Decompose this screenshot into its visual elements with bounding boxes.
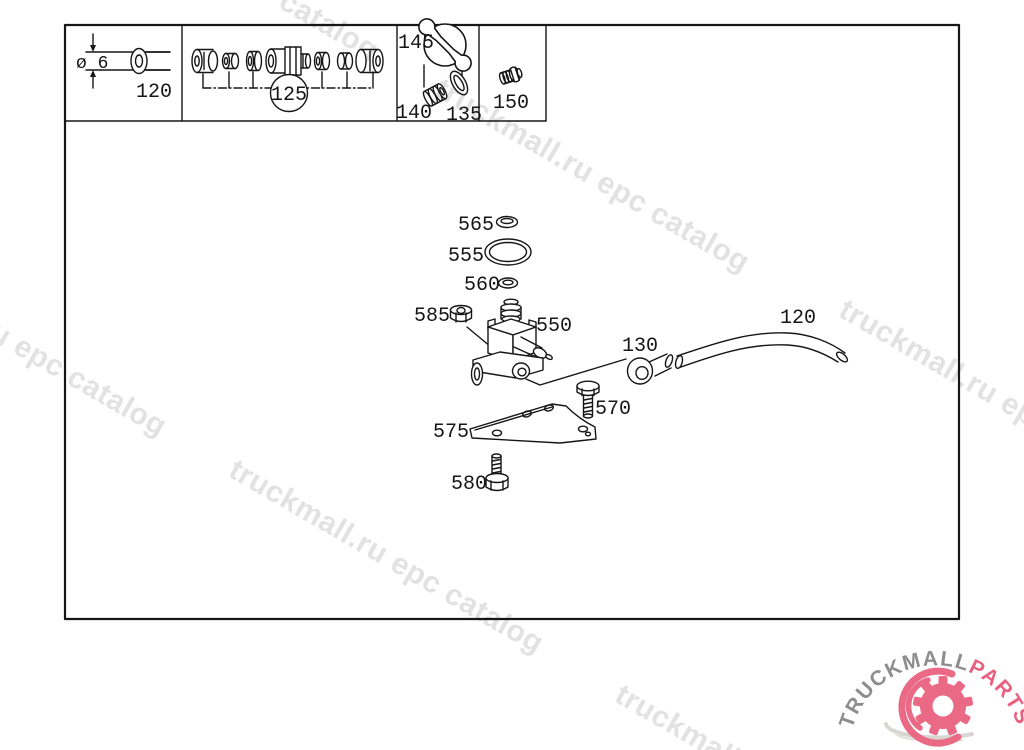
seal-135-drawing (447, 68, 471, 97)
seal-565-drawing: 565 (458, 214, 518, 237)
part-label-140: 140 (396, 102, 432, 125)
bracket-575-drawing: 575 (433, 404, 596, 444)
part-label-120-inset: 120 (136, 81, 172, 104)
part-label-555: 555 (448, 245, 484, 268)
truckmall-logo: TRUCKMALLPARTS (835, 647, 1024, 743)
valve-550-drawing: 550 (472, 299, 573, 385)
part-label-575: 575 (433, 421, 469, 444)
part-label-145: 145 (398, 32, 434, 55)
inset-tools: 145 140 135 (396, 16, 482, 127)
oring-555-drawing: 555 (448, 239, 531, 268)
part-label-120: 120 (780, 307, 816, 330)
inset-tube-120: ø 6 120 (76, 34, 172, 104)
banjo-130-drawing: 130 (622, 335, 674, 384)
parts-diagram-page: truckmall.ru epc catalog truckmall.ru ep… (0, 0, 1024, 750)
hose-120-drawing: 120 (674, 307, 849, 369)
inset-plug-150: 150 (493, 65, 529, 115)
part-label-580: 580 (451, 473, 487, 496)
part-label-565: 565 (458, 214, 494, 237)
logo-text-parts: PARTS (965, 655, 1024, 728)
bolt-570-drawing: 570 (577, 381, 631, 421)
part-label-550: 550 (536, 315, 572, 338)
part-label-570: 570 (595, 398, 631, 421)
grommet-560-drawing: 560 (464, 274, 518, 297)
part-label-130: 130 (622, 335, 658, 358)
inset-union-set-125: 125 (192, 47, 383, 112)
diameter-label: ø 6 (76, 54, 108, 74)
part-label-560: 560 (464, 274, 500, 297)
part-label-135: 135 (446, 104, 482, 127)
part-label-585: 585 (414, 305, 450, 328)
part-label-125: 125 (271, 84, 307, 107)
bolt-580-drawing: 580 (451, 454, 508, 496)
nut-585-drawing: 585 (414, 305, 472, 328)
part-label-150: 150 (493, 92, 529, 115)
